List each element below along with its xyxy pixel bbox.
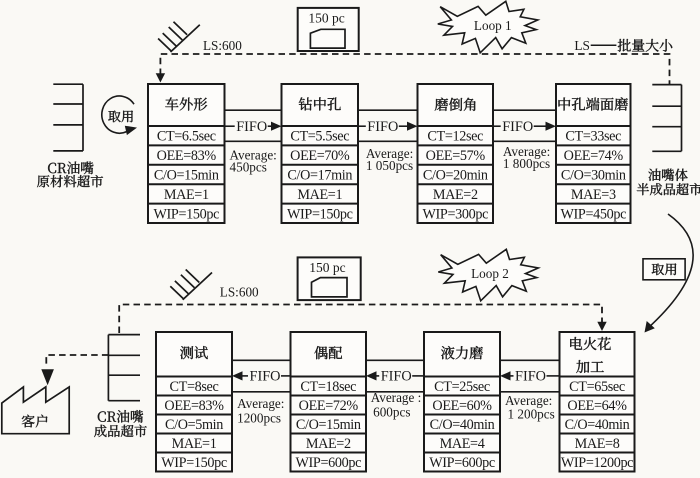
svg-text:FIFO: FIFO	[367, 119, 398, 135]
svg-text:450pcs: 450pcs	[230, 160, 267, 175]
svg-text:CT=33sec: CT=33sec	[565, 129, 621, 145]
svg-text:OEE=64%: OEE=64%	[567, 398, 627, 414]
svg-text:OEE=83%: OEE=83%	[157, 148, 217, 164]
svg-text:WIP=450pc: WIP=450pc	[560, 206, 626, 222]
svg-text:OEE=72%: OEE=72%	[299, 398, 359, 414]
svg-text:C/O=15min: C/O=15min	[296, 417, 361, 433]
svg-text:LS:600: LS:600	[220, 285, 259, 300]
svg-text:MAE=3: MAE=3	[571, 187, 616, 203]
svg-text:Loop 1: Loop 1	[474, 18, 512, 33]
svg-text:150 pc: 150 pc	[309, 260, 345, 275]
svg-text:1200pcs: 1200pcs	[237, 411, 281, 426]
svg-text:OEE=74%: OEE=74%	[564, 148, 624, 164]
svg-text:OEE=60%: OEE=60%	[432, 398, 492, 414]
svg-text:C/O=15min: C/O=15min	[154, 168, 219, 184]
svg-text:LS:600: LS:600	[203, 38, 242, 53]
svg-text:WIP=300pc: WIP=300pc	[422, 206, 488, 222]
svg-text:WIP=150pc: WIP=150pc	[153, 206, 219, 222]
svg-text:MAE=1: MAE=1	[172, 436, 217, 452]
svg-text:LS: LS	[574, 38, 590, 53]
svg-text:MAE=2: MAE=2	[433, 187, 478, 203]
svg-text:WIP=600pc: WIP=600pc	[295, 455, 361, 471]
svg-text:1 800pcs: 1 800pcs	[503, 156, 550, 171]
svg-text:CT=65sec: CT=65sec	[569, 379, 625, 395]
svg-text:OEE=83%: OEE=83%	[164, 398, 224, 414]
svg-text:FIFO: FIFO	[515, 369, 546, 385]
svg-text:MAE=1: MAE=1	[297, 187, 342, 203]
svg-text:WIP=150pc: WIP=150pc	[161, 455, 227, 471]
svg-text:150 pc: 150 pc	[308, 10, 344, 25]
svg-text:CT=18sec: CT=18sec	[300, 379, 356, 395]
svg-text:FIFO: FIFO	[250, 369, 281, 385]
svg-text:WIP=1200pc: WIP=1200pc	[561, 455, 633, 471]
svg-text:C/O=20min: C/O=20min	[423, 168, 488, 184]
svg-text:Loop 2: Loop 2	[471, 266, 509, 281]
svg-text:CT=8sec: CT=8sec	[170, 379, 219, 395]
svg-text:CT=6.5sec: CT=6.5sec	[157, 129, 216, 145]
svg-text:FIFO: FIFO	[502, 119, 533, 135]
svg-text:WIP=600pc: WIP=600pc	[429, 455, 495, 471]
svg-text:CT=25sec: CT=25sec	[434, 379, 490, 395]
svg-text:OEE=57%: OEE=57%	[426, 148, 486, 164]
svg-text:1 050pcs: 1 050pcs	[366, 158, 413, 173]
svg-text:WIP=150pc: WIP=150pc	[287, 206, 353, 222]
svg-text:Average:: Average:	[237, 396, 284, 411]
svg-text:FIFO: FIFO	[381, 369, 412, 385]
svg-text:FIFO: FIFO	[236, 119, 267, 135]
svg-text:OEE=70%: OEE=70%	[290, 148, 350, 164]
svg-text:C/O=40min: C/O=40min	[430, 417, 495, 433]
svg-text:600pcs: 600pcs	[373, 405, 410, 420]
svg-text:MAE=2: MAE=2	[306, 436, 351, 452]
svg-text:Average :: Average :	[371, 390, 422, 405]
svg-text:C/O=40min: C/O=40min	[565, 417, 630, 433]
svg-text:C/O=5min: C/O=5min	[165, 417, 223, 433]
svg-text:MAE=1: MAE=1	[164, 187, 209, 203]
svg-text:MAE=4: MAE=4	[440, 436, 485, 452]
svg-text:C/O=17min: C/O=17min	[287, 168, 352, 184]
svg-text:1 200pcs: 1 200pcs	[508, 406, 555, 421]
svg-text:CT=12sec: CT=12sec	[427, 129, 483, 145]
svg-text:CT=5.5sec: CT=5.5sec	[290, 129, 349, 145]
svg-text:C/O=30min: C/O=30min	[561, 168, 626, 184]
svg-text:MAE=8: MAE=8	[575, 436, 620, 452]
